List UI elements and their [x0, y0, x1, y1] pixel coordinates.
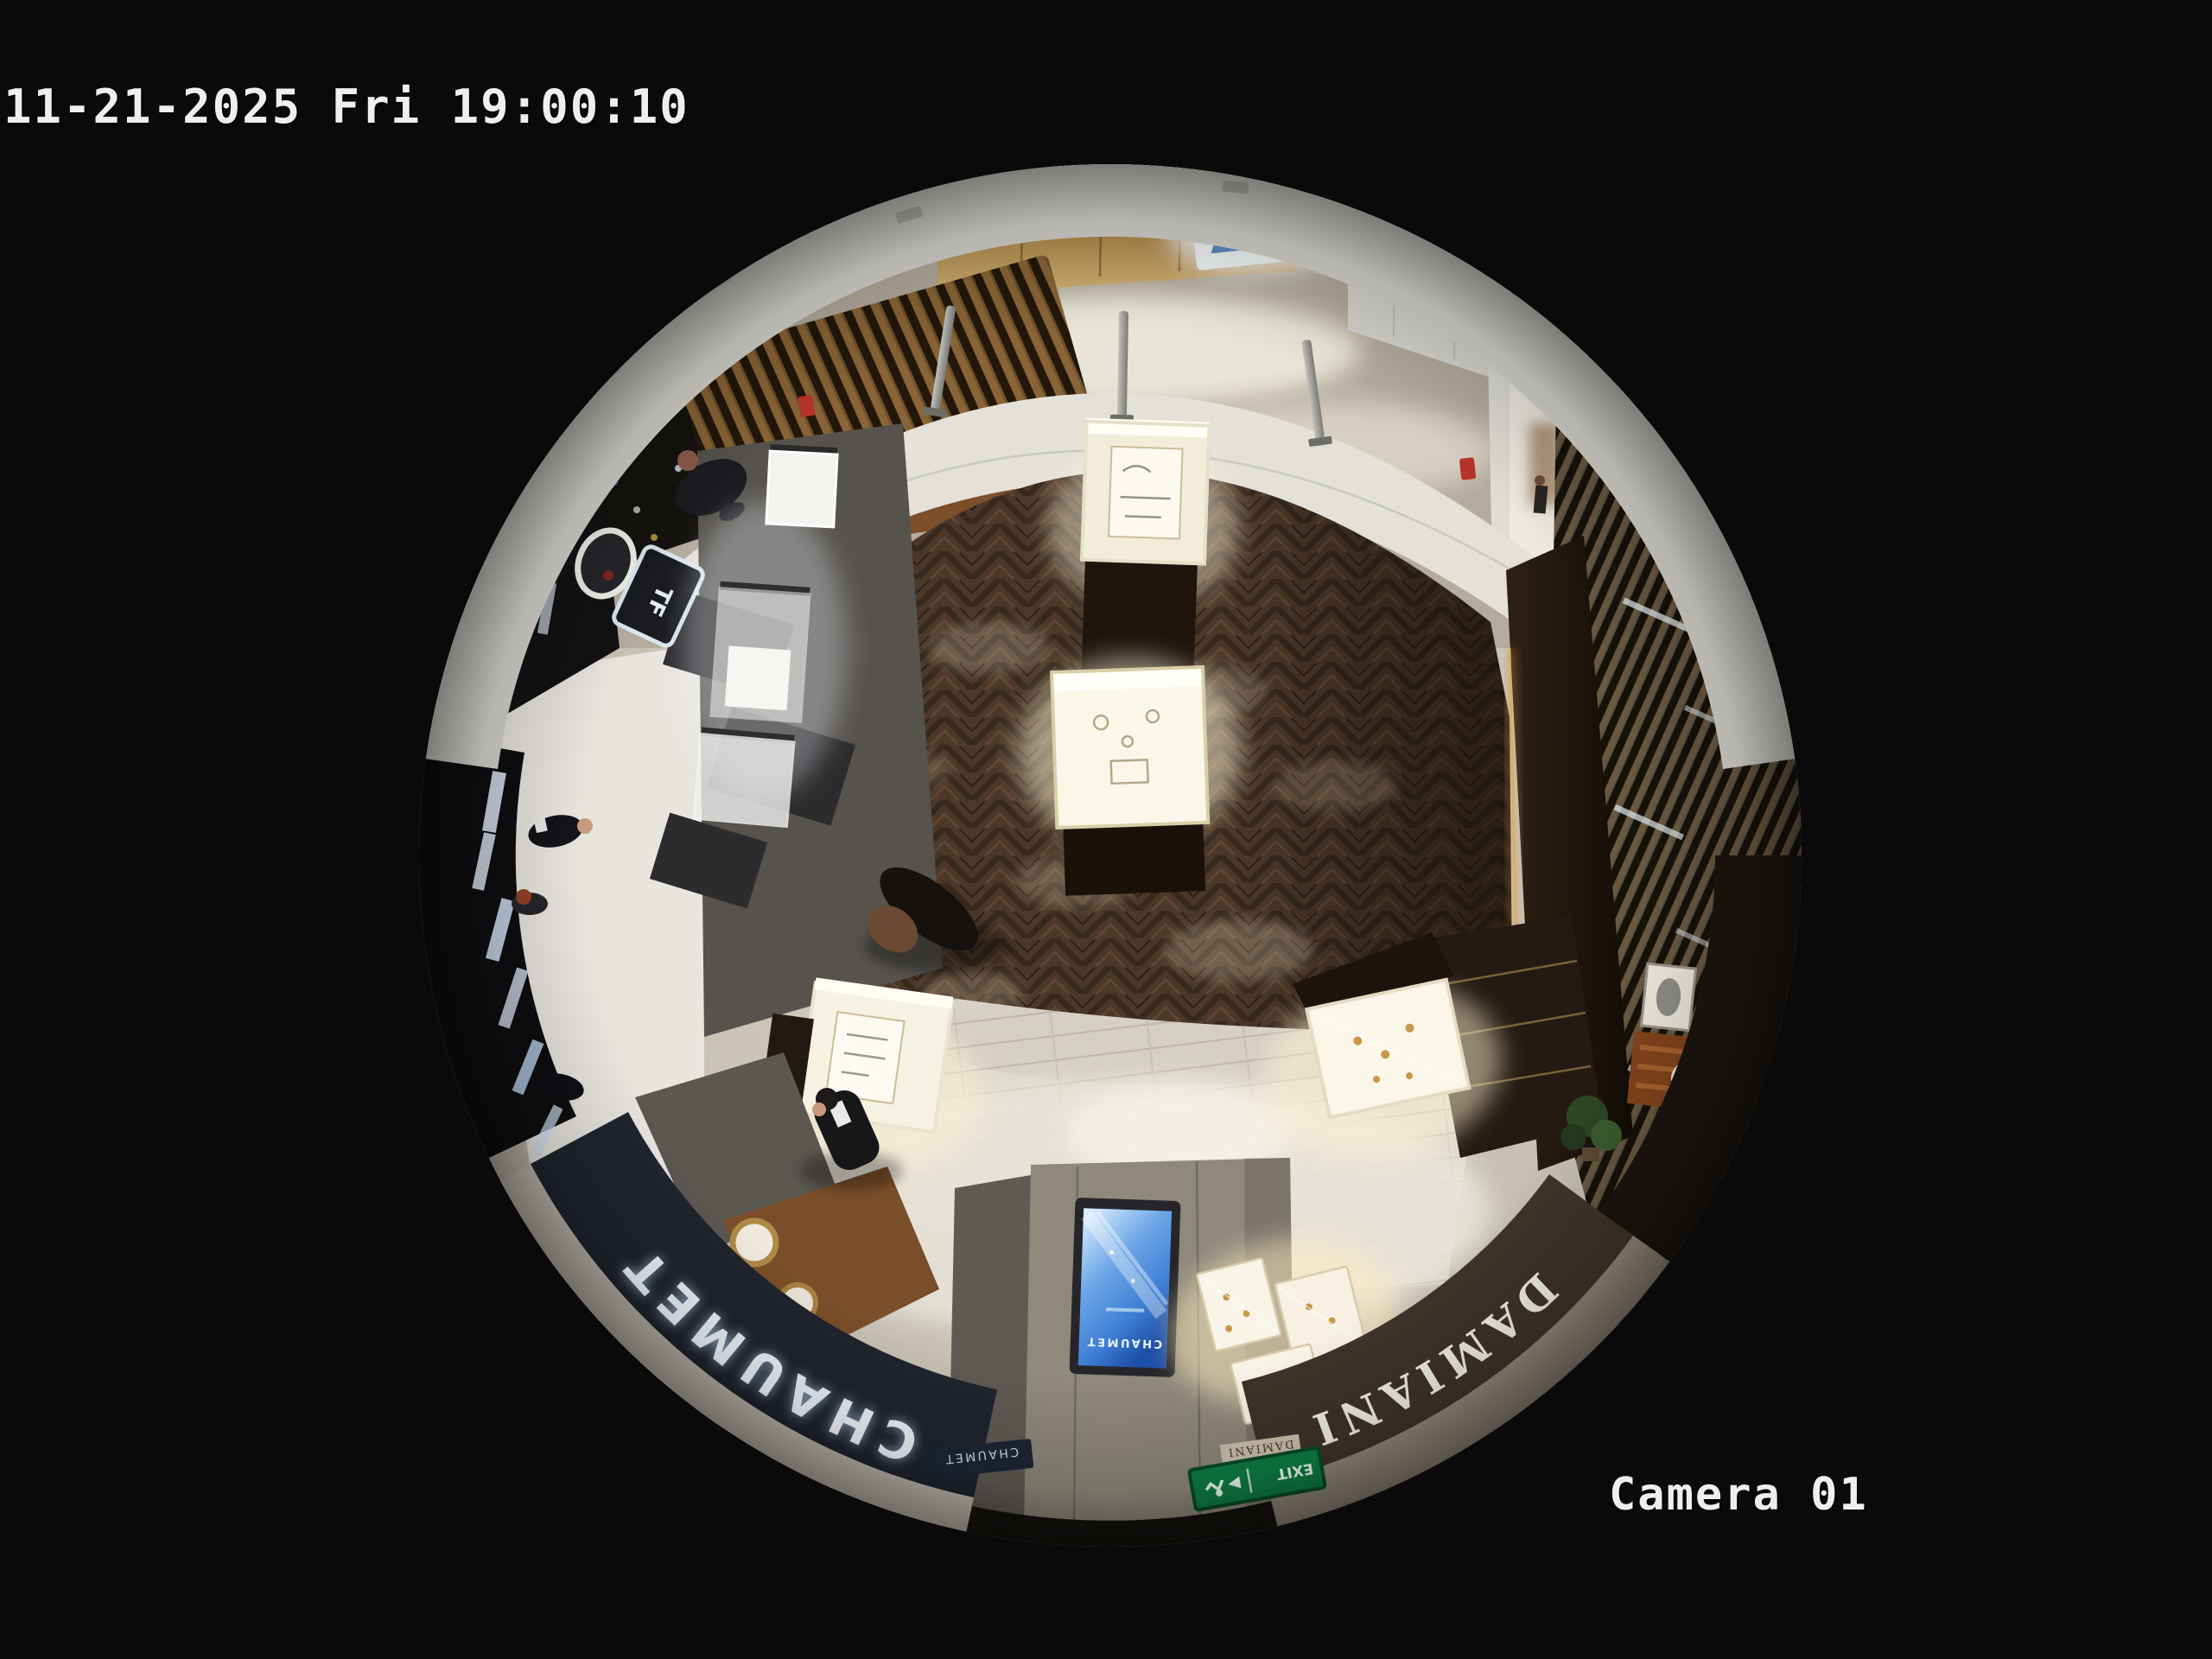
timestamp-overlay: 11-21-2025 Fri 19:00:10 [3, 79, 690, 134]
lens-vignette [419, 164, 1802, 1547]
fisheye-view: RONCH [419, 164, 1802, 1547]
cctv-frame: RONCH [0, 0, 2212, 1659]
fisheye-lens: RONCH [419, 164, 1802, 1547]
camera-label-overlay: Camera 01 [1609, 1469, 1868, 1521]
